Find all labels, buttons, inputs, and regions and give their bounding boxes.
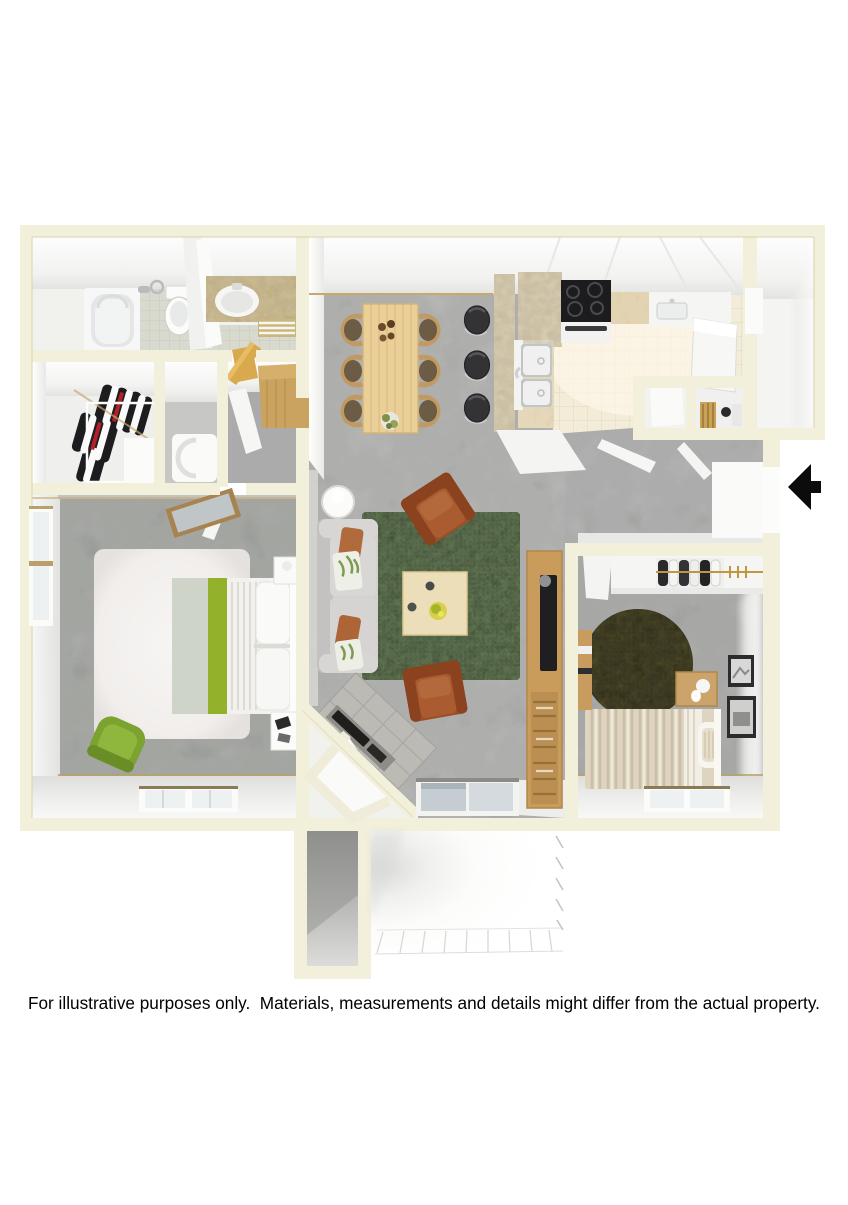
svg-text:For illustrative purposes only: For illustrative purposes only. Material… <box>28 993 820 1013</box>
